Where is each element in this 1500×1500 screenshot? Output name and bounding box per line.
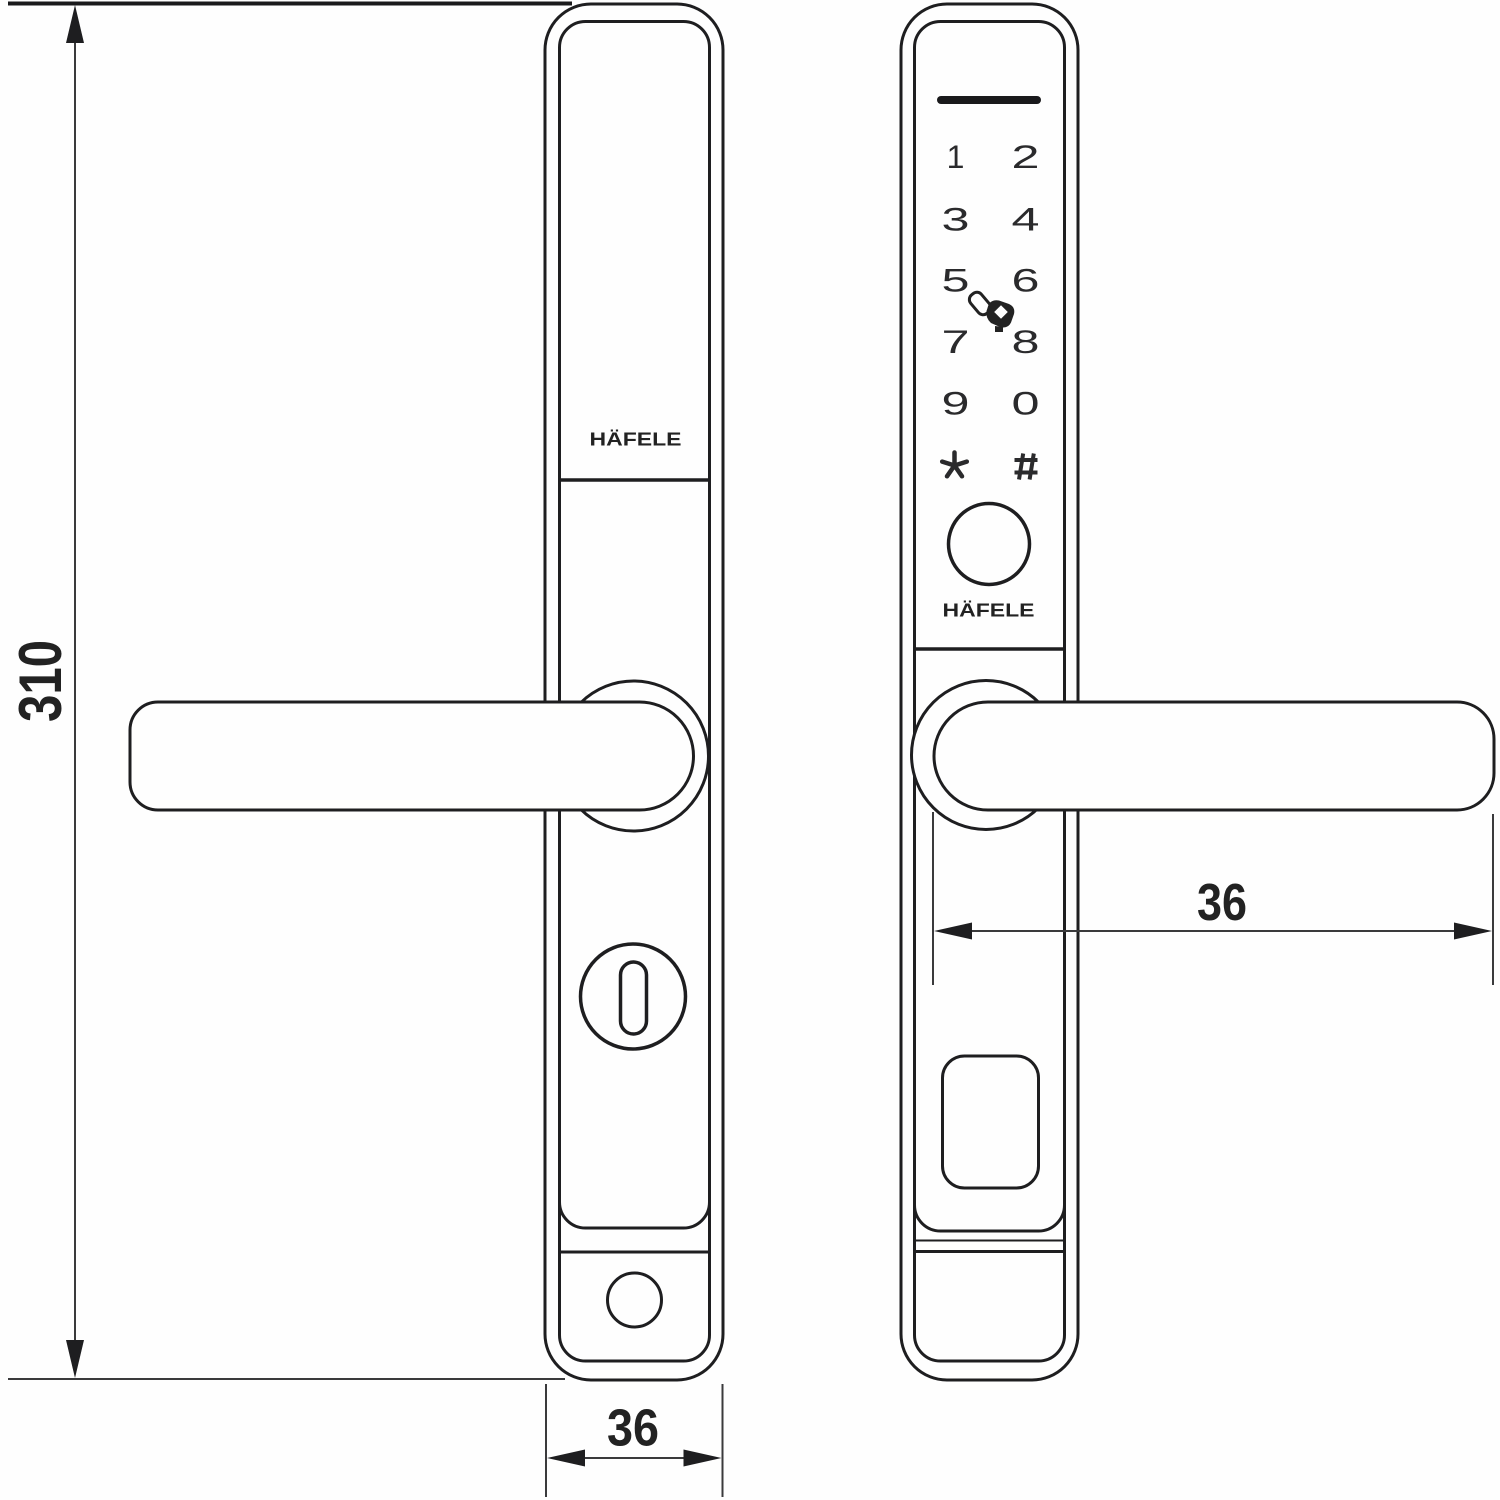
svg-text:3: 3 xyxy=(942,202,970,238)
svg-text:HÄFELE: HÄFELE xyxy=(943,601,1035,621)
svg-text:6: 6 xyxy=(1012,263,1040,299)
svg-text:4: 4 xyxy=(1012,202,1040,238)
svg-text:9: 9 xyxy=(942,386,970,422)
svg-text:36: 36 xyxy=(607,1400,659,1458)
svg-text:310: 310 xyxy=(7,640,74,722)
svg-text:36: 36 xyxy=(1197,874,1247,932)
svg-text:0: 0 xyxy=(1012,386,1040,422)
svg-text:5: 5 xyxy=(942,263,970,299)
svg-text:HÄFELE: HÄFELE xyxy=(590,430,682,450)
svg-text:2: 2 xyxy=(1012,139,1040,175)
svg-text:1: 1 xyxy=(947,139,965,175)
svg-text:8: 8 xyxy=(1012,324,1040,360)
svg-text:7: 7 xyxy=(942,324,970,360)
